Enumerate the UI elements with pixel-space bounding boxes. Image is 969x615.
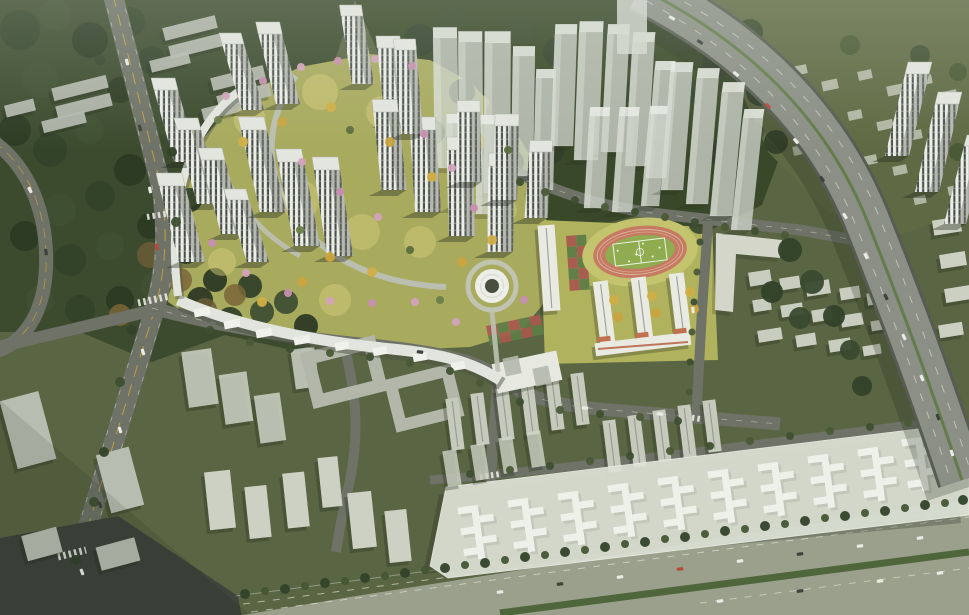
- blossom-trees: [242, 269, 250, 277]
- lawn-highlight-patches: [208, 248, 236, 276]
- road-west-trees: [171, 217, 181, 227]
- plaza-people: [491, 271, 493, 273]
- boulevard-street-trees: [781, 520, 789, 528]
- boulevard-street-trees: [360, 573, 370, 583]
- road-dev-south-trees: [206, 326, 214, 334]
- boulevard-street-trees: [600, 542, 610, 552]
- boulevard-street-trees: [958, 495, 968, 505]
- blossom-trees: [374, 213, 382, 221]
- blossom-trees: [452, 318, 460, 326]
- school-courtyard-trees: [651, 308, 661, 318]
- surface-traffic: [691, 307, 695, 314]
- highway-side-groves: [761, 281, 783, 303]
- plaza-people: [479, 281, 481, 283]
- boulevard-street-trees: [720, 526, 730, 536]
- boulevard-street-trees: [861, 509, 869, 517]
- megablock-road-trees: [866, 423, 874, 431]
- highway-side-groves: [823, 305, 845, 327]
- road-dev-south-trees: [674, 417, 682, 425]
- forest-canopy-nw: [96, 232, 124, 260]
- golden-trees: [325, 252, 335, 262]
- boulevard-street-trees: [680, 532, 690, 542]
- road-dev-south-trees: [286, 345, 294, 353]
- boulevard-street-trees: [661, 535, 669, 543]
- school-courtyard-trees: [647, 291, 657, 301]
- school-east-trees: [687, 359, 694, 366]
- aerial-masterplan-render: [0, 0, 969, 615]
- boulevard-street-trees: [760, 521, 770, 531]
- boulevard-street-trees: [800, 516, 810, 526]
- boulevard-street-trees: [421, 566, 429, 574]
- lawn-highlight-patches: [319, 284, 351, 316]
- surface-traffic: [657, 412, 664, 416]
- boulevard-street-trees: [301, 582, 309, 590]
- megablock-road-trees: [546, 462, 554, 470]
- megablock-road-trees: [746, 437, 754, 445]
- boulevard-street-trees: [461, 561, 469, 569]
- boulevard-street-trees: [581, 546, 589, 554]
- road-dev-south-trees: [326, 349, 334, 357]
- boulevard-street-trees: [920, 500, 930, 510]
- road-dev-south-trees: [556, 406, 564, 414]
- boulevard-street-trees: [560, 547, 570, 557]
- dev-green-trees: [406, 246, 414, 254]
- surface-traffic: [417, 350, 424, 354]
- golden-trees: [427, 172, 437, 182]
- school-courts-cell: [568, 268, 579, 280]
- golden-trees: [367, 267, 377, 277]
- boulevard-street-trees: [440, 563, 450, 573]
- boulevard-street-trees: [381, 572, 389, 580]
- boulevard-street-trees: [400, 568, 410, 578]
- highway-side-groves: [778, 238, 802, 262]
- megablock-road-trees: [626, 452, 634, 460]
- school-courts-cell: [579, 278, 590, 290]
- blossom-trees: [448, 164, 456, 172]
- blossom-trees: [284, 289, 292, 297]
- road-ne-street-trees: [571, 196, 579, 204]
- road-west-trees: [127, 325, 137, 335]
- road-dev-south-trees: [246, 338, 254, 346]
- boulevard-street-trees: [541, 551, 549, 559]
- megablock-road-trees: [586, 457, 594, 465]
- blossom-trees: [520, 296, 528, 304]
- road-dev-south-trees: [476, 379, 484, 387]
- boulevard-street-trees: [621, 540, 629, 548]
- school-east-trees: [691, 299, 698, 306]
- school-east-trees: [694, 269, 701, 276]
- megablock-road-trees: [786, 432, 794, 440]
- forest-canopy-nw: [10, 221, 40, 251]
- blossom-trees: [208, 239, 216, 247]
- central-plaza-core: [485, 279, 499, 293]
- surface-traffic: [44, 249, 48, 256]
- golden-trees: [457, 257, 467, 267]
- residential-tower-roof: [224, 189, 249, 200]
- highway-side-groves: [840, 340, 860, 360]
- blossom-trees: [411, 298, 419, 306]
- megablock-road-trees: [826, 427, 834, 435]
- residential-tower-roof: [312, 157, 340, 170]
- boulevard-street-trees: [240, 589, 250, 599]
- dev-green-trees: [296, 226, 304, 234]
- golden-trees: [257, 297, 267, 307]
- boulevard-street-trees: [840, 511, 850, 521]
- golden-trees: [487, 235, 497, 245]
- megablock-road-trees: [706, 442, 714, 450]
- autumn-canopy: [224, 284, 246, 306]
- school-east-trees: [697, 239, 704, 246]
- boulevard-street-trees: [701, 530, 709, 538]
- boulevard-street-trees: [880, 506, 890, 516]
- blossom-trees: [326, 297, 334, 305]
- school-east-trees: [686, 389, 693, 396]
- boulevard-street-trees: [480, 558, 490, 568]
- school-courtyard-trees: [685, 287, 695, 297]
- residential-tower-roof: [156, 173, 185, 186]
- road-ne-street-trees: [721, 223, 729, 231]
- plaza-people: [487, 294, 489, 296]
- road-dev-south-trees: [596, 410, 604, 418]
- golden-trees: [297, 277, 307, 287]
- school-east-trees: [689, 329, 696, 336]
- surface-traffic: [582, 406, 589, 410]
- road-ne-street-trees: [631, 208, 639, 216]
- school-courts-cell: [567, 246, 578, 258]
- megablock-road-trees: [904, 419, 912, 427]
- school-courts-cell: [568, 257, 579, 269]
- road-west-trees: [99, 447, 109, 457]
- road-dev-south-trees: [516, 398, 524, 406]
- forest-canopy-nw: [54, 244, 86, 276]
- boulevard-street-trees: [261, 587, 269, 595]
- school-courtyard-trees: [613, 312, 623, 322]
- blossom-trees: [368, 299, 376, 307]
- road-ne-street-trees: [601, 203, 609, 211]
- boulevard-street-trees: [941, 499, 949, 507]
- boulevard-street-trees: [320, 578, 330, 588]
- road-ne-street-trees: [541, 188, 549, 196]
- highway-side-groves: [852, 376, 872, 396]
- road-dev-south-trees: [366, 353, 374, 361]
- boulevard-street-trees: [341, 577, 349, 585]
- school-courts-cell: [569, 279, 580, 291]
- boulevard-street-trees: [901, 504, 909, 512]
- dev-green-trees: [436, 296, 444, 304]
- school-courts-cell: [576, 235, 587, 247]
- plaza-people: [502, 289, 504, 291]
- megablock-road-trees: [466, 470, 474, 478]
- blossom-trees: [298, 158, 306, 166]
- road-ne-street-trees: [516, 178, 524, 186]
- blossom-trees: [470, 204, 478, 212]
- road-ne-street-trees: [781, 231, 789, 239]
- boulevard-street-trees: [520, 552, 530, 562]
- plaza-people: [499, 277, 501, 279]
- school-courts-cell: [566, 235, 577, 247]
- scene-canvas: [0, 0, 969, 615]
- school-courtyard-trees: [609, 295, 619, 305]
- forest-canopy-nw: [85, 181, 115, 211]
- megablock-road-trees: [506, 466, 514, 474]
- boulevard-street-trees: [821, 514, 829, 522]
- road-dev-south-trees: [406, 359, 414, 367]
- boulevard-street-trees: [280, 584, 290, 594]
- forest-canopy-nw: [114, 154, 146, 186]
- road-dev-south-trees: [636, 413, 644, 421]
- boulevard-street-trees: [741, 525, 749, 533]
- blossom-trees: [336, 188, 344, 196]
- atmosphere-haze: [0, 0, 969, 150]
- boulevard-street-trees: [640, 537, 650, 547]
- road-ne-street-trees: [691, 218, 699, 226]
- highway-side-groves: [800, 270, 824, 294]
- road-ne-street-trees: [661, 213, 669, 221]
- highway-side-groves: [789, 307, 811, 329]
- road-ne-street-trees: [751, 227, 759, 235]
- road-west-trees: [115, 377, 125, 387]
- megablock-road-trees: [666, 447, 674, 455]
- boulevard-street-trees: [501, 556, 509, 564]
- road-dev-south-trees: [446, 367, 454, 375]
